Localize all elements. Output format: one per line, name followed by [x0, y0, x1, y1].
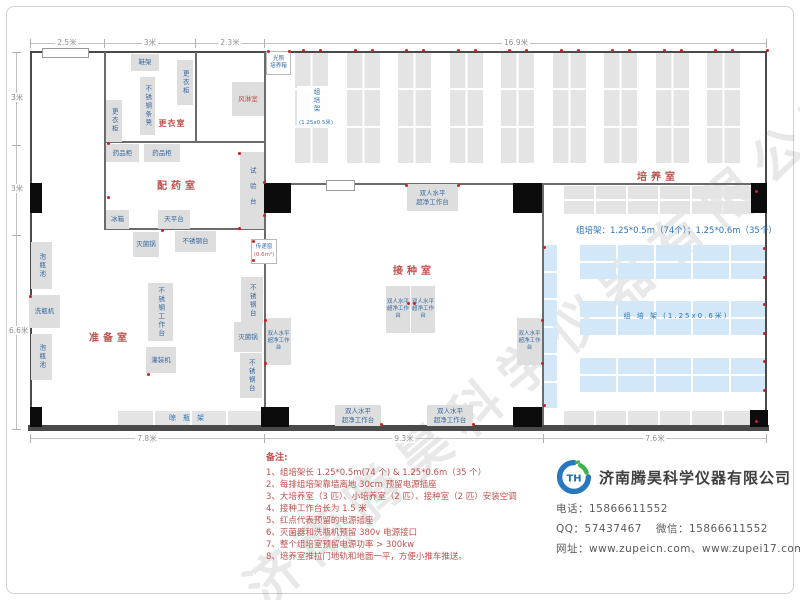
web-value: www.zupeicn.com、www.zupei17.com [589, 543, 800, 555]
svg-text:TH: TH [566, 473, 581, 484]
power-outlet-dot [288, 50, 291, 53]
rack-cell [580, 358, 616, 374]
note-item: 6、灭菌器和洗瓶机预留 380v 电源接口 [266, 527, 551, 539]
power-outlet-dot [731, 49, 734, 52]
power-outlet-dot [474, 49, 477, 52]
power-outlet-dot [413, 302, 416, 305]
notes-block: 备注: 1、组培架长 1.25*0.5m(74 个) & 1.25*0.6m（3… [266, 450, 551, 563]
pillar [750, 410, 768, 427]
sterilizer-label: 灭菌锅 [238, 333, 258, 341]
power-outlet-dot [354, 49, 357, 52]
culture-rack-column [501, 53, 534, 163]
clean-bench-label: 双人水平 超净工作台 [517, 331, 542, 352]
bottle-pool-label: 泡瓶池 [37, 253, 45, 279]
room-label-changing: 更衣室 [159, 118, 186, 129]
power-outlet-dot [263, 181, 266, 184]
rack-cell [656, 90, 689, 125]
bottle-washer-label: 洗瓶机 [35, 307, 55, 315]
wechat-label: 微信： [656, 523, 689, 535]
power-outlet-dot [302, 49, 305, 52]
company-logo-icon: TH [556, 458, 592, 496]
culture-rack-column [347, 53, 380, 163]
dim-tick [12, 235, 21, 236]
dim-top-3: 2.3米 [218, 38, 241, 47]
dim-tick [766, 434, 767, 443]
rack-cell [656, 245, 692, 261]
dim-top-1: 2.5米 [55, 38, 78, 47]
dim-tick [12, 52, 21, 53]
dim-top-2: 3米 [142, 38, 158, 47]
rack-cell [693, 358, 729, 374]
bottle-pool-2: 泡瓶池 [31, 334, 52, 380]
bottle-pool-label: 泡瓶池 [37, 344, 45, 370]
clean-bench-label: 双人水平 超净工作台 [416, 189, 449, 206]
rack-cell [580, 376, 616, 392]
rack-cell [693, 245, 729, 261]
rack-cell [604, 128, 637, 163]
pillar [261, 407, 289, 427]
notes-title: 备注: [266, 450, 551, 463]
rack-cell [543, 300, 557, 326]
rack-cell [731, 245, 767, 261]
rack-cell [580, 301, 616, 317]
fridge: 冰箱 [106, 210, 129, 229]
power-outlet-dot [680, 49, 683, 52]
rack-cell [693, 376, 729, 392]
medicine-cabinet-1: 药品柜 [106, 144, 139, 162]
dim-tick [264, 434, 265, 443]
medicine-cabinet-2: 药品柜 [144, 144, 180, 162]
power-outlet-dot [541, 362, 544, 365]
culture-rack-small-label: 组培架 (1.25x0.5米) [297, 86, 335, 128]
steel-table-2: 不锈钢台 [241, 277, 263, 325]
rack-cell [656, 128, 689, 163]
rack-name: 组培架 [311, 88, 321, 114]
rack-cell [693, 263, 729, 279]
rack-cell [656, 319, 692, 335]
rack-cell [564, 201, 594, 214]
company-header: TH 济南腾昊科学仪器有限公司 [556, 458, 791, 496]
rack-cell [628, 201, 658, 214]
rack-cell [692, 201, 722, 214]
rack-cell [553, 128, 586, 163]
clean-bench-label: 双人水平 超净工作台 [342, 407, 375, 424]
wardrobe-left: 更衣柜 [106, 100, 122, 142]
note-item: 8、培养室推拉门地轨和地面一平，方便小推车推送。 [266, 551, 551, 563]
power-outlet-dot [147, 373, 150, 376]
culture-rack-column [604, 53, 637, 163]
rack-cell [543, 328, 557, 354]
power-outlet-dot [543, 246, 546, 249]
rack-cell [731, 263, 767, 279]
pillar [513, 407, 542, 427]
room-label-prep: 准备室 [89, 329, 131, 344]
note-item: 1、组培架长 1.25*0.5m(74 个) & 1.25*0.6m（35 个） [266, 467, 551, 479]
dim-left-2: 3米 [9, 184, 25, 193]
power-outlet-dot [238, 152, 241, 155]
rack-cell [543, 355, 557, 381]
company-qq-row: QQ：57437467微信：15866611552 [556, 521, 791, 536]
balance-table-label: 天平台 [164, 215, 184, 223]
power-outlet-dot [543, 404, 546, 407]
qq-label: QQ： [556, 523, 585, 535]
rack-cell [618, 245, 654, 261]
power-outlet-dot [577, 49, 580, 52]
clean-bench-top: 双人水平 超净工作台 [407, 184, 458, 211]
power-outlet-dot [763, 247, 766, 250]
clean-bench-center-left: 双人水平 超净工作台 [386, 286, 410, 333]
shelf-rack [564, 186, 754, 214]
rack-cell [398, 128, 431, 163]
rack-cell [692, 411, 722, 426]
dim-tick [12, 145, 21, 146]
rack-cell [618, 358, 654, 374]
power-outlet-dot [763, 303, 766, 306]
rack-cell [618, 263, 654, 279]
culture-rack-column [656, 53, 689, 163]
fridge-label: 冰箱 [111, 215, 124, 223]
pass-window-size: (0.6m²) [254, 252, 275, 258]
dim-tick [264, 39, 265, 48]
rack-cell [580, 319, 616, 335]
rack-cell [692, 186, 722, 199]
power-outlet-dot [766, 49, 769, 52]
rack-cell [450, 53, 483, 88]
power-outlet-dot [380, 423, 383, 426]
steel-bench: 不锈钢条凳 [140, 77, 155, 135]
web-label: 网址： [556, 543, 589, 555]
rack-cell [660, 201, 690, 214]
wall [542, 184, 544, 428]
rack-size: (1.25x0.5米) [297, 118, 335, 126]
rack-cell [501, 53, 534, 88]
clean-bench-right-wall: 双人水平 超净工作台 [517, 318, 542, 365]
power-outlet-dot [611, 49, 614, 52]
dim-tick [543, 434, 544, 443]
sterilizer-2: 灭菌锅 [234, 322, 262, 352]
clean-bench-bottom-right: 双人水平 超净工作台 [427, 405, 473, 426]
dim-left-1: 3米 [9, 93, 25, 102]
note-item: 4、接种工作台长为 1.5 米 [266, 503, 551, 515]
power-outlet-dot [525, 49, 528, 52]
rack-cell [724, 201, 754, 214]
rack-cell [628, 411, 658, 426]
dim-bottom-1: 7.8米 [135, 434, 158, 443]
power-outlet-dot [29, 295, 32, 298]
light-incubator: 光照 培养箱 [266, 51, 291, 75]
rack-cell [580, 263, 616, 279]
dim-bottom-3: 7.6米 [643, 434, 666, 443]
steel-table-label: 不锈钢台 [247, 359, 255, 393]
wall [765, 51, 767, 430]
test-bench: 试验台 [240, 152, 264, 229]
rack-cell [604, 90, 637, 125]
phone-label: 电话： [556, 503, 589, 515]
rack-cell [564, 411, 594, 426]
rack-spec-text: 组培架：1.25*0.5m（74个）；1.25*0.6m（35个） [576, 224, 777, 236]
shelf-rack [543, 245, 557, 408]
air-shower: 风淋室 [232, 82, 264, 116]
dim-tick [104, 39, 105, 48]
rack-cell [656, 358, 692, 374]
dim-top-4: 16.9米 [502, 38, 530, 47]
dim-tick [30, 39, 31, 48]
floor-plan-canvas: 济南腾昊科学仪器有限公司 2.5米 3米 2.3米 16.9米 3米 3米 6.… [0, 0, 800, 600]
rack-cell [660, 186, 690, 199]
qq-value: 57437467 [585, 523, 642, 535]
culture-rack-column [553, 53, 586, 163]
rack-cell [398, 53, 431, 88]
medicine-cabinet-label: 药品柜 [152, 149, 172, 157]
rack-cell [501, 90, 534, 125]
pillar [263, 183, 291, 213]
company-name: 济南腾昊科学仪器有限公司 [599, 467, 791, 488]
wardrobe-right: 更衣柜 [177, 60, 193, 105]
drying-rack-label: 晾瓶架 [169, 413, 211, 423]
power-outlet-dot [763, 276, 766, 279]
medicine-cabinet-label: 药品柜 [113, 149, 133, 157]
steel-table-label: 不锈钢台 [183, 237, 209, 245]
test-bench-label: 试验台 [248, 167, 256, 214]
clean-bench-bottom-left: 双人水平 超净工作台 [335, 405, 381, 426]
power-outlet-dot [472, 423, 475, 426]
rack-cell [707, 128, 740, 163]
rack-cell [596, 201, 626, 214]
culture-rack-column [398, 53, 431, 163]
pillar [751, 183, 767, 213]
power-outlet-dot [107, 142, 110, 145]
dim-bottom-2: 9.3米 [392, 434, 415, 443]
filling-machine: 灌装机 [146, 347, 176, 373]
shelf-rack [580, 358, 767, 392]
note-item: 2、每排组培架靠墙离地 30cm 预留电源插座 [266, 479, 551, 491]
power-outlet-dot [264, 362, 267, 365]
power-outlet-dot [267, 50, 270, 53]
steel-table-3: 不锈钢台 [240, 353, 262, 398]
rack-cell [553, 53, 586, 88]
power-outlet-dot [407, 302, 410, 305]
rack-cell [731, 301, 767, 317]
shoe-rack-label: 鞋架 [139, 58, 152, 66]
note-item: 3、大培养室（3 匹）、小培养室（2 匹）、接种室（2 匹）安装空调 [266, 491, 551, 503]
pass-window-label: 传递窗 [256, 244, 273, 250]
power-outlet-dot [541, 319, 544, 322]
power-outlet-dot [264, 319, 267, 322]
filling-machine-label: 灌装机 [151, 356, 171, 364]
door [42, 48, 89, 58]
dim-tick [12, 429, 21, 430]
power-outlet-dot [238, 227, 241, 230]
culture-rack-column [707, 53, 740, 163]
pillar [30, 183, 42, 213]
power-outlet-dot [252, 240, 255, 243]
rack-cell [731, 319, 767, 335]
rack-cell [628, 186, 658, 199]
power-outlet-dot [763, 332, 766, 335]
rack-cell [731, 358, 767, 374]
dim-tick [195, 39, 196, 48]
rack-cell [347, 128, 380, 163]
door [326, 180, 355, 191]
shelf-rack [564, 411, 754, 426]
room-label-culture: 培养室 [637, 168, 679, 183]
wechat-value: 15866611552 [689, 523, 768, 535]
rack-cell [724, 186, 754, 199]
rack-cell [295, 128, 328, 163]
bottle-pool-1: 泡瓶池 [31, 242, 52, 289]
power-outlet-dot [763, 360, 766, 363]
dim-tick [30, 434, 31, 443]
room-label-dispensing: 配药室 [157, 177, 199, 192]
power-outlet-dot [161, 229, 164, 232]
power-outlet-dot [319, 49, 322, 52]
rack-cell [656, 376, 692, 392]
rack-cell [707, 53, 740, 88]
steel-table-1: 不锈钢台 [175, 231, 216, 252]
pillar [513, 183, 542, 213]
clean-bench-label: 双人水平 超净工作台 [434, 407, 467, 424]
power-outlet-dot [457, 184, 460, 187]
wall [30, 51, 767, 53]
rack-cell [564, 186, 594, 199]
rack-cell [295, 53, 328, 88]
rack-cell [580, 245, 616, 261]
power-outlet-dot [763, 389, 766, 392]
power-outlet-dot [107, 196, 110, 199]
room-label-inoculation: 接种室 [393, 262, 435, 277]
power-outlet-dot [755, 190, 758, 193]
clean-bench-left-wall: 双人水平 超净工作台 [266, 318, 291, 365]
dim-tick [766, 39, 767, 48]
dim-line-top [30, 43, 767, 44]
bottle-washer: 洗瓶机 [29, 295, 60, 328]
power-outlet-dot [263, 214, 266, 217]
rack-cell [347, 90, 380, 125]
culture-rack-column [450, 53, 483, 163]
power-outlet-dot [560, 49, 563, 52]
power-outlet-dot [405, 184, 408, 187]
power-outlet-dot [508, 49, 511, 52]
rack-big-label: 组 培 架 (1.25x0.6米) [624, 311, 729, 321]
company-web-row: 网址：www.zupeicn.com、www.zupei17.com [556, 541, 791, 556]
rack-cell [347, 53, 380, 88]
rack-cell [596, 411, 626, 426]
rack-cell [398, 90, 431, 125]
rack-cell [660, 411, 690, 426]
rack-cell [450, 90, 483, 125]
rack-cell [618, 319, 654, 335]
wall [195, 52, 197, 142]
note-item: 7、整个组培室预留电源功率 > 300kw [266, 539, 551, 551]
shoe-rack: 鞋架 [131, 54, 159, 71]
light-incubator-label: 光照 培养箱 [270, 56, 287, 70]
air-shower-label: 风淋室 [238, 95, 258, 103]
rack-cell [656, 263, 692, 279]
power-outlet-dot [422, 49, 425, 52]
rack-cell [731, 376, 767, 392]
rack-cell [501, 128, 534, 163]
rack-cell [596, 186, 626, 199]
balance-table: 天平台 [158, 210, 190, 229]
pillar [30, 407, 42, 427]
rack-cell [693, 319, 729, 335]
power-outlet-dot [457, 49, 460, 52]
outer-wall-bottom [28, 425, 769, 431]
shelf-rack [580, 245, 767, 279]
rack-cell [553, 90, 586, 125]
sterilizer-label: 灭菌锅 [136, 240, 156, 248]
rack-cell [450, 128, 483, 163]
company-block: TH 济南腾昊科学仪器有限公司 电话：15866611552 QQ：574374… [556, 458, 791, 556]
company-phone-row: 电话：15866611552 [556, 501, 791, 516]
wardrobe-label: 更衣柜 [181, 70, 189, 96]
steel-table-label: 不锈钢台 [248, 284, 256, 318]
wardrobe-label: 更衣柜 [110, 108, 118, 134]
steel-bench-label: 不锈钢条凳 [143, 85, 151, 128]
rack-cell [618, 376, 654, 392]
dim-left-3: 6.6米 [7, 326, 30, 335]
rack-cell [707, 90, 740, 125]
power-outlet-dot [405, 49, 408, 52]
wall [104, 141, 266, 143]
rack-cell [604, 53, 637, 88]
sterilizer-1: 灭菌锅 [133, 232, 159, 257]
steel-workbench-label: 不锈钢工作台 [156, 287, 164, 338]
dim-line-left [16, 52, 17, 430]
power-outlet-dot [628, 49, 631, 52]
power-outlet-dot [663, 49, 666, 52]
note-item: 5、红点代表预留的电源插座 [266, 515, 551, 527]
steel-workbench: 不锈钢工作台 [148, 283, 173, 341]
clean-bench-center-right: 双人水平 超净工作台 [411, 286, 435, 333]
phone-value: 15866611552 [589, 503, 668, 515]
rack-cell [656, 53, 689, 88]
power-outlet-dot [371, 49, 374, 52]
rack-cell [543, 273, 557, 299]
power-outlet-dot [755, 420, 758, 423]
pass-window-text: 传递窗(0.6m²) [254, 244, 275, 258]
power-outlet-dot [714, 49, 717, 52]
clean-bench-label: 双人水平 超净工作台 [266, 331, 291, 352]
power-outlet-dot [252, 259, 255, 262]
